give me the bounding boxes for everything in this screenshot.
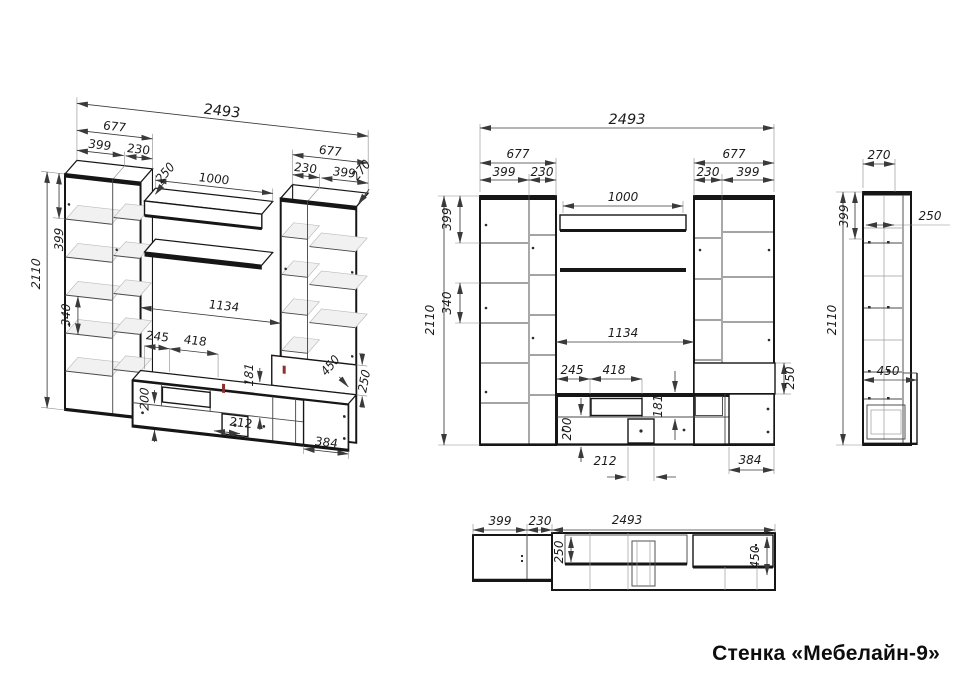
axon-dim-height: 2110 bbox=[29, 257, 43, 289]
side-dim-height: 2110 bbox=[825, 304, 839, 335]
axon-dim-right-width: 677 bbox=[319, 143, 342, 160]
front-dim-top-section: 399 bbox=[440, 208, 454, 231]
plan-dim-base-depth: 450 bbox=[748, 545, 762, 568]
front-view: 2493 677 399 230 677 230 399 1000 399 34… bbox=[423, 112, 797, 481]
axon-wall-shelves bbox=[145, 187, 273, 271]
front-dim-comp-b: 418 bbox=[603, 363, 626, 377]
axon-dim-shelf-width: 1000 bbox=[199, 170, 230, 187]
drawing-sheet: 2493 677 399 230 250 1000 677 230 399 27… bbox=[0, 0, 960, 679]
blueprint-page: 2493 677 399 230 250 1000 677 230 399 27… bbox=[0, 0, 960, 679]
axon-dim-comp-a: 245 bbox=[146, 328, 169, 345]
plan-dim-shelf-depth: 250 bbox=[552, 540, 566, 563]
front-dim-mid-section: 340 bbox=[440, 291, 454, 314]
axon-dim-right-col-a: 230 bbox=[294, 160, 317, 177]
front-dim-right-col-a: 230 bbox=[697, 165, 720, 179]
axon-dim-left-col-a: 399 bbox=[88, 137, 111, 154]
axon-dim-niche-width: 1134 bbox=[209, 297, 239, 314]
front-dim-left-col-a: 399 bbox=[493, 165, 516, 179]
front-dim-shelf-width: 1000 bbox=[608, 190, 639, 204]
axon-dim-lower-row: 200 bbox=[138, 386, 152, 411]
axon-dim-drawer-w: 212 bbox=[230, 415, 253, 432]
plan-dim-col-b: 230 bbox=[529, 514, 552, 528]
side-dim-depth: 270 bbox=[868, 148, 891, 162]
axon-dim-overall-width: 2493 bbox=[204, 102, 241, 122]
front-wall-shelves bbox=[560, 215, 686, 272]
axon-red-mark-1 bbox=[222, 384, 225, 393]
axon-dim-right-base-w: 384 bbox=[315, 434, 338, 451]
front-dim-overall-width: 2493 bbox=[609, 112, 646, 128]
plan-dim-col-a: 399 bbox=[489, 514, 512, 528]
front-dim-right-width: 677 bbox=[723, 147, 746, 161]
front-dim-left-col-b: 230 bbox=[531, 165, 554, 179]
axon-red-mark-2 bbox=[283, 366, 286, 374]
axon-dim-left-width: 677 bbox=[103, 118, 126, 135]
front-dim-niche-width: 1134 bbox=[608, 326, 639, 340]
plan-dim-overall-width: 2493 bbox=[612, 513, 643, 527]
front-dim-lower-row: 200 bbox=[560, 417, 574, 440]
axon-dim-upper-row: 181 bbox=[242, 362, 256, 386]
side-dim-top-section: 399 bbox=[837, 205, 851, 228]
axon-dim-comp-b: 418 bbox=[184, 332, 207, 349]
front-right-open-shelf bbox=[694, 363, 775, 394]
front-dim-height: 2110 bbox=[423, 304, 437, 335]
side-view: 270 399 250 2110 450 bbox=[825, 148, 950, 445]
axon-dim-mid-section: 340 bbox=[59, 303, 73, 328]
front-dim-right-base-w: 384 bbox=[739, 453, 762, 467]
side-dim-base-depth: 450 bbox=[877, 364, 900, 378]
front-dim-comp-a: 245 bbox=[561, 363, 584, 377]
side-dim-shelf-depth: 250 bbox=[919, 209, 942, 223]
front-dim-left-width: 677 bbox=[507, 147, 530, 161]
plan-view: 399 230 2493 250 450 bbox=[473, 513, 775, 590]
front-dim-drawer-w: 212 bbox=[594, 454, 617, 468]
front-dim-right-col-b: 399 bbox=[737, 165, 760, 179]
axon-dim-right-shelf-h: 250 bbox=[355, 368, 373, 394]
axonometric-view: 2493 677 399 230 250 1000 677 230 399 27… bbox=[29, 82, 374, 467]
drawing-title: Стенка «Мебелайн-9» bbox=[712, 642, 940, 666]
axon-dim-left-col-b: 230 bbox=[127, 141, 150, 158]
front-dim-right-shelf-h: 250 bbox=[783, 366, 797, 389]
axon-dim-top-section: 399 bbox=[52, 227, 66, 251]
front-dim-upper-row: 181 bbox=[651, 395, 665, 418]
front-left-cabinet bbox=[480, 196, 556, 445]
